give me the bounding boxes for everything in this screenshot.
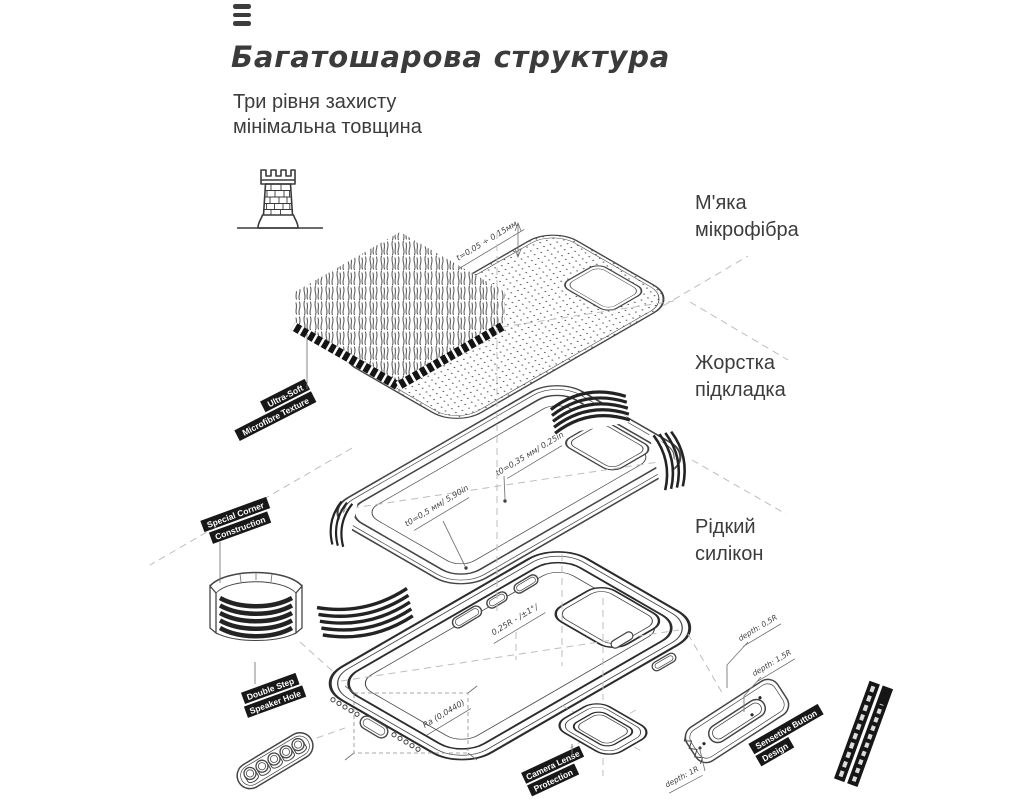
ribbon-special-corner: Special Corner Construction [200,497,275,545]
corner-piece [210,572,302,641]
ribbed-strip-right [834,681,893,787]
speaker-hole-strip [232,728,317,794]
ribbon-camera-lense: Camera Lense Protection [521,746,590,797]
exploded-diagram: t=0,05 ÷ 0,15мм [0,0,1024,800]
svg-text:depth: 1R: depth: 1R [663,764,700,789]
silicone-case-layer: Ra (0,0440) 0,25R - /±1°/ [313,542,724,770]
svg-text:depth: 1,5R: depth: 1,5R [751,648,793,678]
svg-text:depth: 0,5R: depth: 0,5R [737,613,779,643]
corner-bumper-right [649,428,689,493]
ribbon-ultra-soft: Ultra-Soft Microfibre Texture [228,379,316,441]
ribbon-double-step: Double Step Speaker Hole [239,672,306,718]
infographic-page: Багатошарова структура Три рівня захисту… [0,0,1024,800]
